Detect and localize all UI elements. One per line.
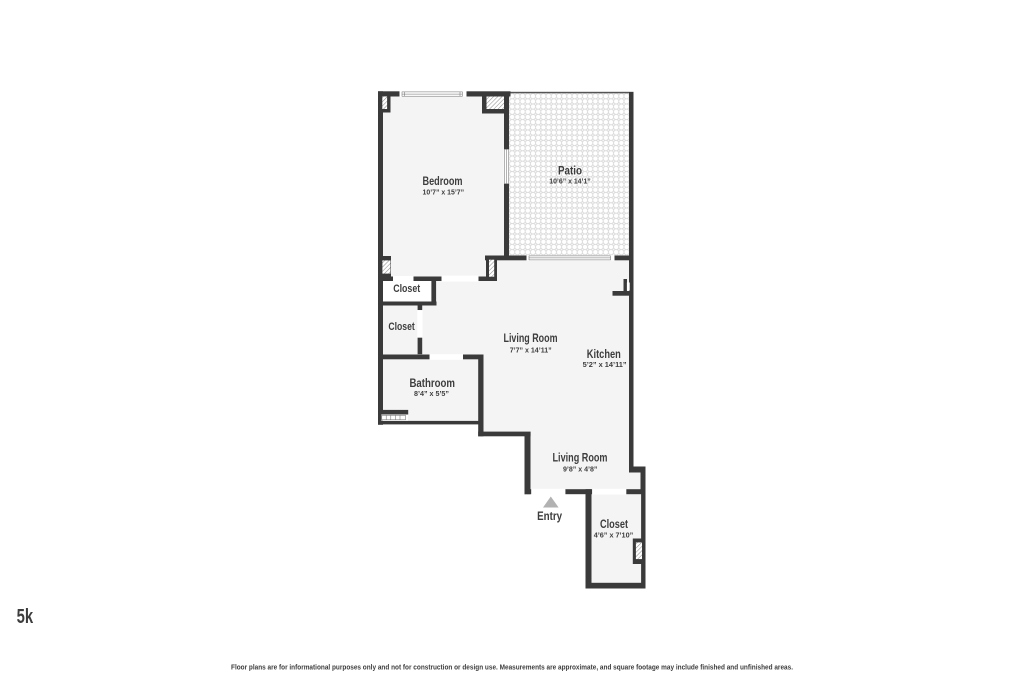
svg-text:8’4” x 5’5”: 8’4” x 5’5” [414,389,449,398]
svg-text:10’7” x 15’7”: 10’7” x 15’7” [423,187,465,196]
svg-text:7’7” x 14’11”: 7’7” x 14’11” [510,346,552,355]
svg-text:Floor plans are for informatio: Floor plans are for informational purpos… [231,665,793,672]
svg-text:5k: 5k [17,606,34,628]
svg-text:9’8” x 4’8”: 9’8” x 4’8” [563,464,598,473]
svg-text:5’2” x 14’11”: 5’2” x 14’11” [583,360,627,369]
svg-text:4’6” x 7’10”: 4’6” x 7’10” [594,531,634,540]
svg-text:Closet: Closet [600,519,628,531]
svg-text:Closet: Closet [388,321,415,333]
svg-text:Closet: Closet [393,283,420,295]
svg-text:Living Room: Living Room [553,453,608,465]
svg-text:Entry: Entry [537,511,563,523]
svg-text:Bedroom: Bedroom [423,176,463,188]
svg-text:10’6” x 14’1”: 10’6” x 14’1” [549,177,591,186]
svg-text:Living Room: Living Room [504,333,558,345]
